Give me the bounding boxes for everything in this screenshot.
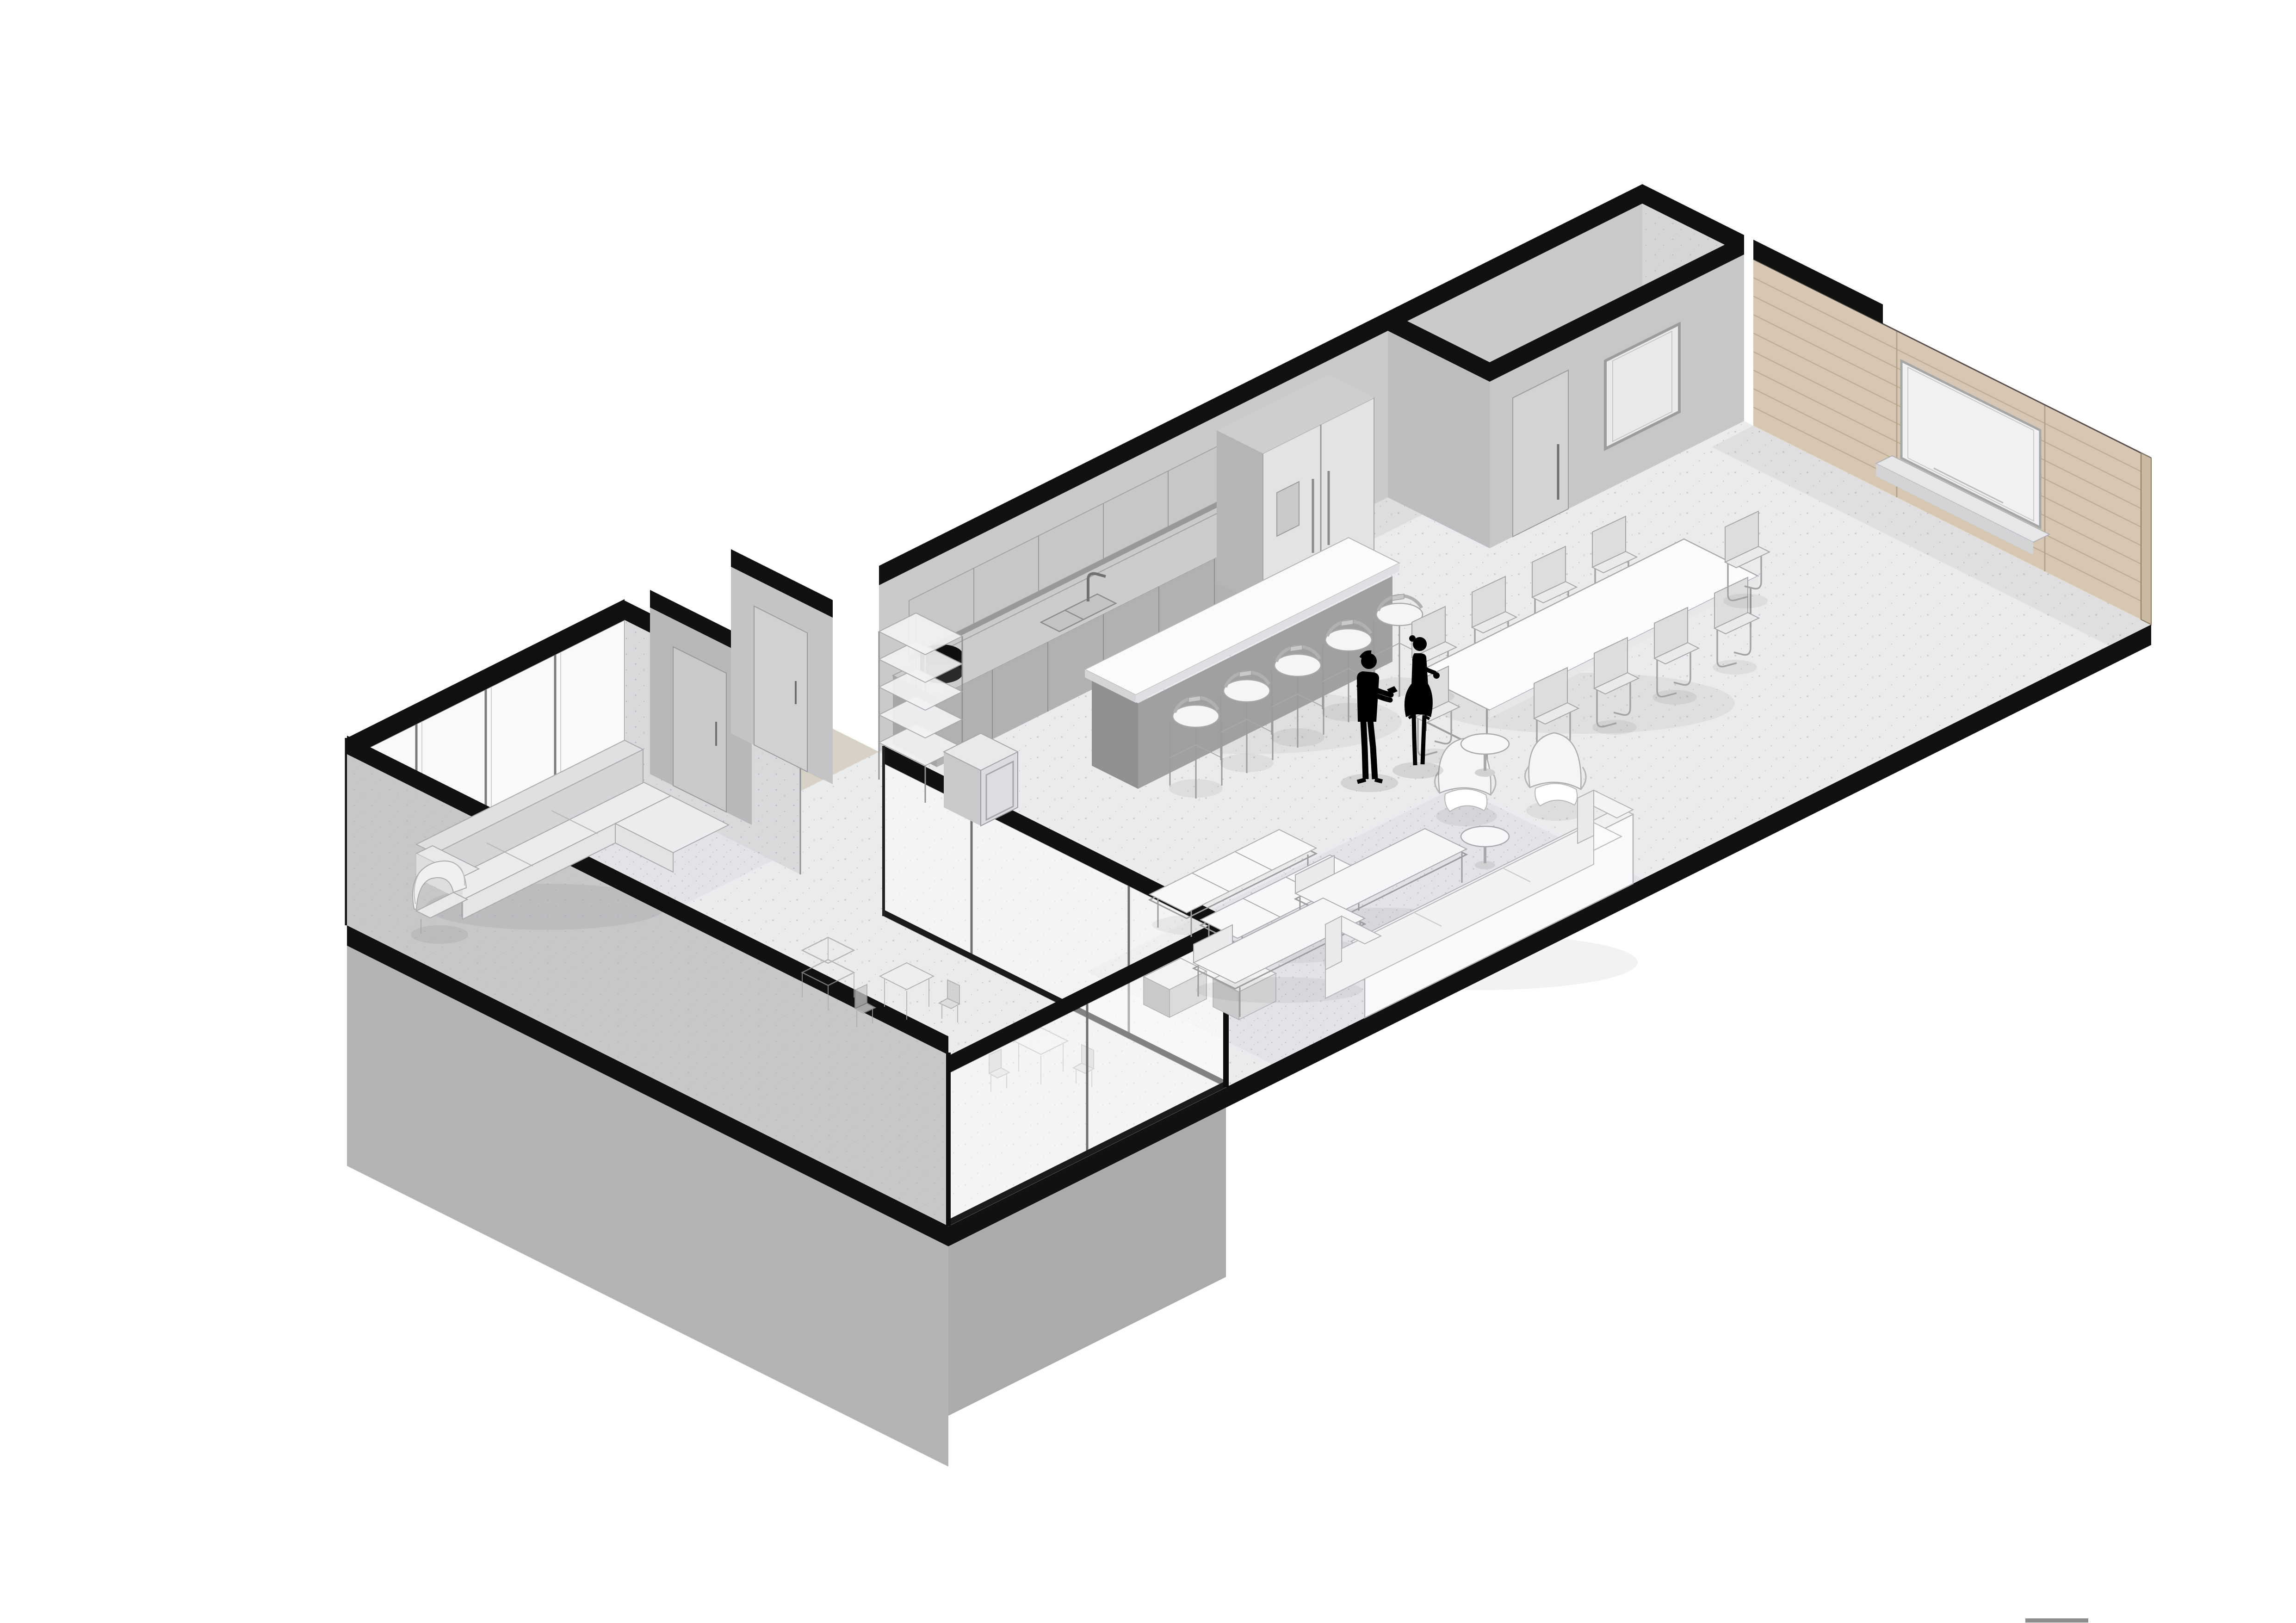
entry-door-1 bbox=[673, 647, 726, 812]
entry-door-2 bbox=[754, 606, 807, 772]
bottom-scale-bar bbox=[2025, 1618, 2088, 1623]
mini-fridge bbox=[944, 733, 1018, 826]
pantry-door bbox=[1513, 370, 1568, 537]
floor-plan-render bbox=[0, 0, 2296, 1623]
